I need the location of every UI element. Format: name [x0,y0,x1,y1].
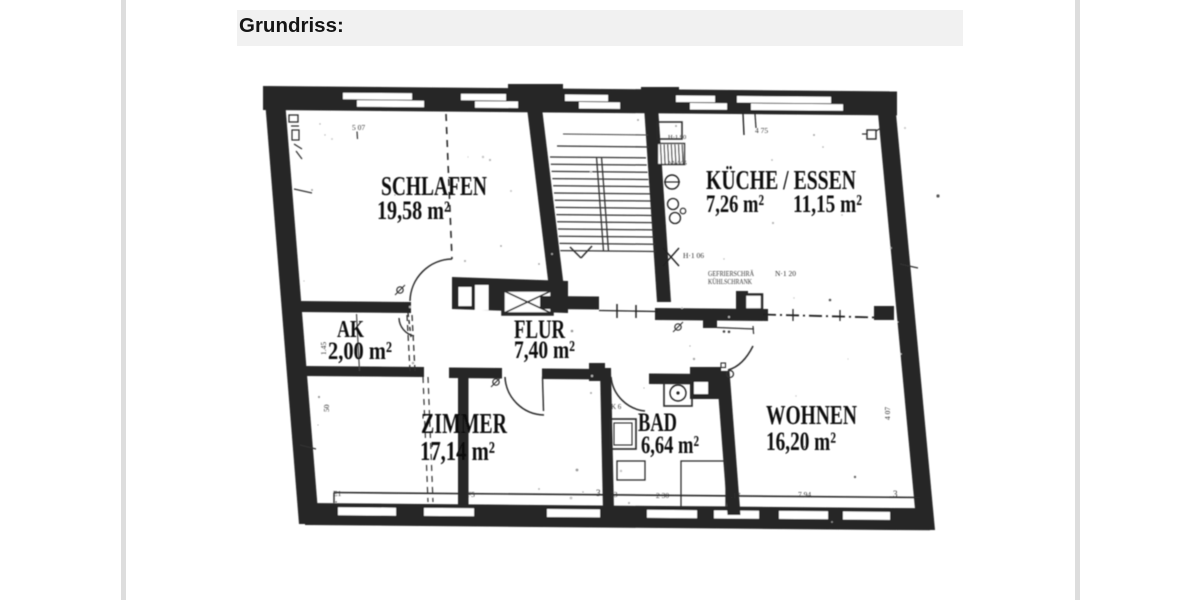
svg-text:11,15 m²: 11,15 m² [793,191,862,218]
svg-text:7,26 m²: 7,26 m² [706,191,764,218]
svg-text:N·1 20: N·1 20 [775,269,796,278]
svg-text:KÜHLSCHRANK: KÜHLSCHRANK [708,278,752,286]
svg-text:WOHNEN: WOHNEN [766,400,857,430]
svg-text:F5: F5 [467,490,475,499]
svg-text:7 94: 7 94 [798,490,811,499]
svg-text:19,58 m²: 19,58 m² [377,196,450,225]
svg-text:4 75: 4 75 [755,126,768,135]
svg-text:4 07: 4 07 [883,407,892,420]
svg-text:H·1 06: H·1 06 [683,251,704,260]
svg-text:Grundriss:: Grundriss: [239,14,344,37]
svg-text:2,00 m²: 2,00 m² [328,338,392,365]
svg-text:2 30: 2 30 [656,491,669,500]
svg-text:3: 3 [596,488,601,498]
svg-text:K 6: K 6 [611,403,622,411]
svg-text:3: 3 [893,489,898,499]
svg-text:5 07: 5 07 [352,123,365,132]
svg-text:1.45: 1.45 [319,342,328,355]
svg-text:7,40 m²: 7,40 m² [514,337,575,364]
svg-text:NW 05: NW 05 [668,160,687,167]
svg-text:GEFRIERSCHRÄ: GEFRIERSCHRÄ [708,270,754,278]
svg-text:6,64 m²: 6,64 m² [641,432,699,459]
svg-text:50: 50 [322,404,331,412]
svg-text:E1: E1 [333,489,342,498]
svg-text:.17: .17 [731,491,741,500]
svg-text:16,20 m²: 16,20 m² [766,427,836,456]
svg-text:73: 73 [610,490,618,499]
svg-text:17,14 m²: 17,14 m² [420,436,495,466]
svg-text:H·1.90: H·1.90 [668,134,686,141]
